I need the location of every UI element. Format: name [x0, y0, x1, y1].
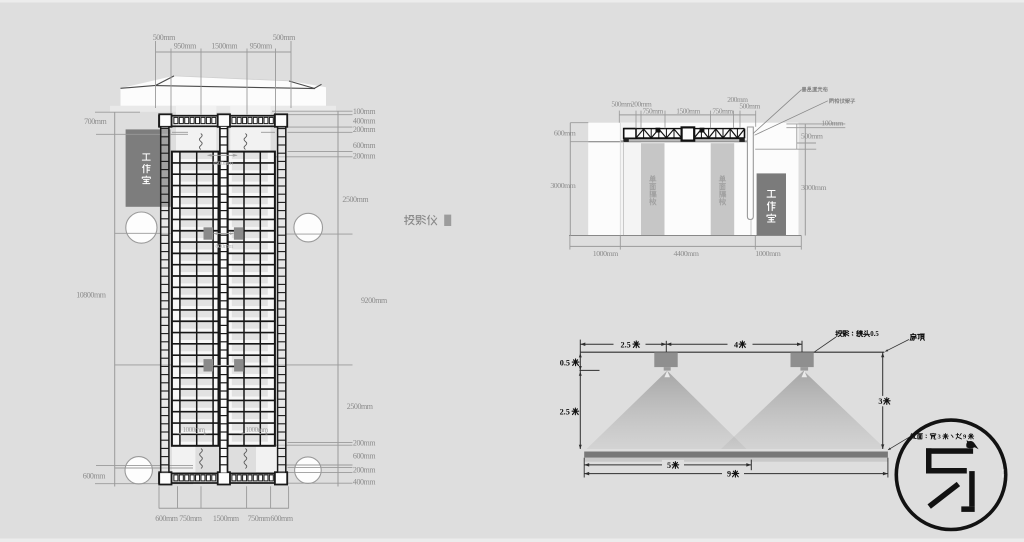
svg-text:950mm: 950mm [174, 42, 197, 51]
svg-text:3000mm: 3000mm [801, 183, 826, 192]
svg-text:4400mm: 4400mm [673, 249, 698, 258]
svg-text:100mm: 100mm [353, 107, 376, 116]
svg-text:600mm: 600mm [353, 452, 376, 461]
svg-text:1000mm: 1000mm [755, 249, 780, 258]
svg-text:1500mm: 1500mm [211, 42, 238, 51]
svg-text:2500mm: 2500mm [342, 195, 369, 204]
svg-text:200mm: 200mm [353, 439, 376, 448]
svg-text:1000mm: 1000mm [245, 426, 268, 434]
svg-text:700mm: 700mm [84, 117, 107, 126]
svg-text:2500mm: 2500mm [347, 402, 374, 411]
svg-text:100mm: 100mm [821, 118, 843, 127]
svg-text:600mm: 600mm [353, 141, 376, 150]
svg-text:1500mm: 1500mm [213, 514, 240, 523]
svg-text:750mm: 750mm [643, 106, 664, 115]
svg-text:2.5: 2.5 [560, 407, 570, 416]
svg-text:200mm: 200mm [353, 465, 376, 474]
svg-text:500mm: 500mm [801, 131, 823, 140]
svg-text:200mm: 200mm [353, 152, 376, 161]
svg-text:600mm: 600mm [215, 243, 233, 250]
svg-text:9200mm: 9200mm [361, 296, 388, 305]
svg-text:750mm: 750mm [248, 514, 271, 523]
svg-text:1500mm: 1500mm [212, 160, 233, 167]
svg-text:2.5: 2.5 [620, 340, 630, 349]
svg-text:750mm: 750mm [712, 106, 733, 115]
svg-text:3000mm: 3000mm [550, 181, 575, 190]
svg-text:U: U [1002, 475, 1005, 479]
svg-text:1500mm: 1500mm [676, 106, 700, 115]
svg-text:500mm: 500mm [611, 99, 632, 108]
svg-text:5: 5 [667, 461, 671, 470]
svg-text:600mm: 600mm [554, 128, 576, 137]
svg-text:500mm: 500mm [153, 33, 176, 42]
svg-text:200mm: 200mm [353, 125, 376, 134]
svg-text:4: 4 [734, 340, 738, 349]
svg-text:500mm: 500mm [739, 101, 760, 110]
svg-text:950mm: 950mm [250, 42, 273, 51]
svg-text:500mm: 500mm [273, 33, 296, 42]
svg-text:400mm: 400mm [353, 116, 376, 125]
svg-text:Y: Y [1002, 470, 1005, 474]
svg-text:0.5: 0.5 [870, 331, 879, 338]
svg-text:10800mm: 10800mm [76, 290, 107, 299]
svg-text:600mm: 600mm [155, 514, 178, 523]
svg-text:750mm: 750mm [179, 514, 202, 523]
svg-text:3: 3 [878, 397, 882, 406]
svg-text:400mm: 400mm [353, 477, 376, 486]
svg-text:600mm: 600mm [83, 472, 106, 481]
svg-text:9: 9 [727, 470, 731, 479]
svg-text:0.5: 0.5 [560, 358, 570, 367]
svg-text:1000mm: 1000mm [183, 426, 206, 434]
svg-text:600mm: 600mm [270, 514, 293, 523]
svg-text:1000mm: 1000mm [593, 249, 618, 258]
